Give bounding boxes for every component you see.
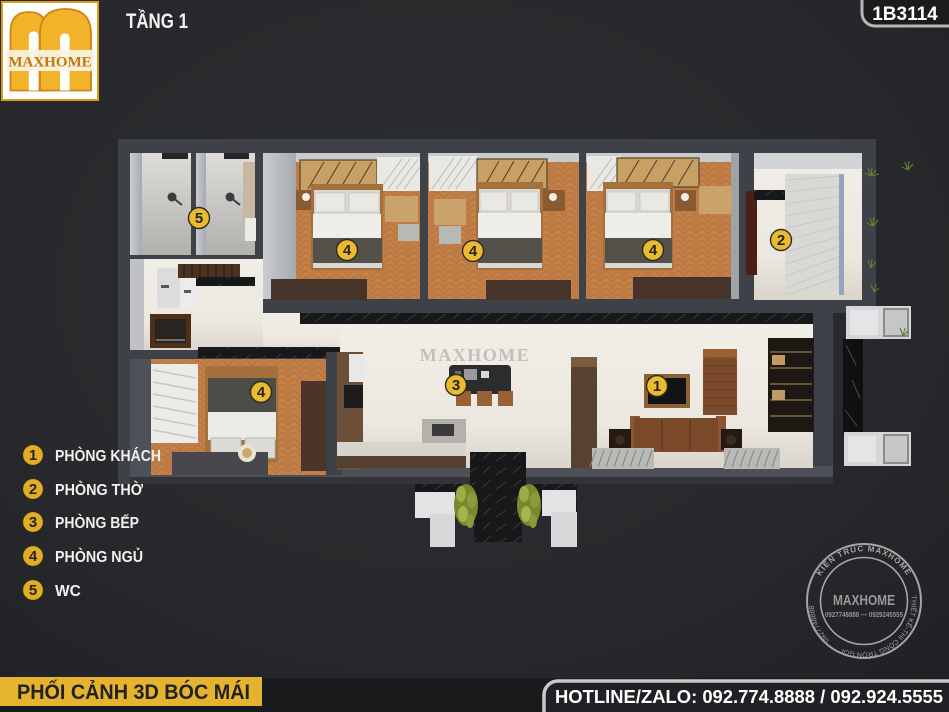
svg-text:4: 4 [649,242,658,259]
svg-text:3: 3 [452,377,460,394]
svg-text:3: 3 [29,514,37,531]
svg-text:1: 1 [29,447,37,464]
svg-text:4: 4 [469,243,478,260]
svg-text:WC: WC [55,583,81,600]
svg-text:PHÒNG KHÁCH: PHÒNG KHÁCH [55,447,161,465]
svg-text:4: 4 [257,384,266,401]
svg-text:PHÒNG THỜ: PHÒNG THỜ [55,481,144,499]
svg-text:MAXHOME: MAXHOME [833,592,895,609]
svg-text:5: 5 [29,582,37,599]
svg-text:TẦNG 1: TẦNG 1 [126,10,188,33]
svg-text:5: 5 [195,210,203,227]
svg-text:MAXHOME: MAXHOME [8,55,91,71]
svg-text:1B3114: 1B3114 [872,4,938,25]
svg-text:HOTLINE/ZALO: 092.774.8888 / 0: HOTLINE/ZALO: 092.774.8888 / 092.924.555… [555,686,943,707]
svg-text:MAXHOME: MAXHOME [420,345,530,365]
svg-text:2: 2 [29,481,37,498]
svg-text:PHÒNG NGỦ: PHÒNG NGỦ [55,548,143,566]
svg-text:1: 1 [653,378,661,395]
svg-text:2: 2 [777,232,785,249]
svg-text:4: 4 [343,242,352,259]
svg-text:4: 4 [29,548,38,565]
svg-text:0927748888 — 0929245555: 0927748888 — 0929245555 [825,610,903,619]
svg-text:PHỐI CẢNH 3D BÓC MÁI: PHỐI CẢNH 3D BÓC MÁI [17,680,250,704]
svg-text:PHÒNG BẾP: PHÒNG BẾP [55,514,139,532]
